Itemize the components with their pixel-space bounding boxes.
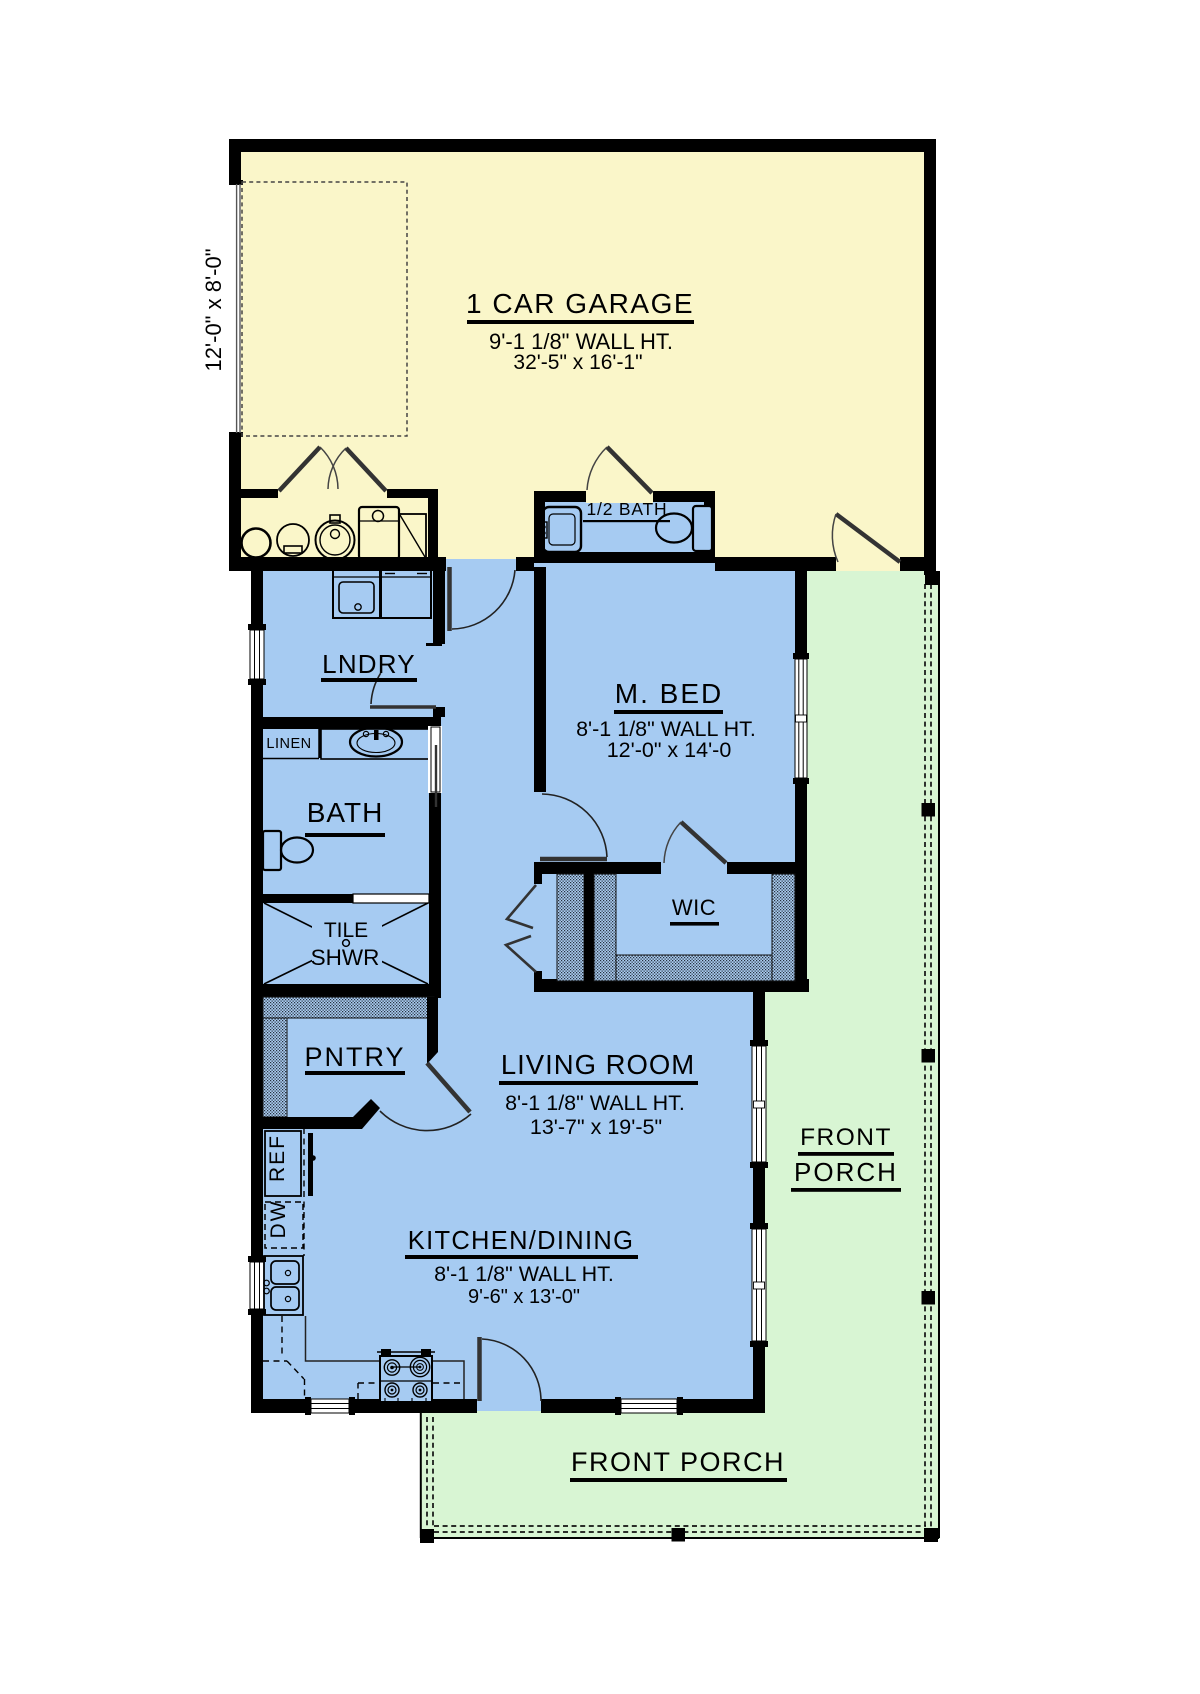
svg-text:12'-0" x 14'-0: 12'-0" x 14'-0 <box>607 738 732 762</box>
svg-text:12'-0" x 8'-0": 12'-0" x 8'-0" <box>201 248 226 371</box>
svg-text:PNTRY: PNTRY <box>304 1042 405 1072</box>
svg-text:LNDRY: LNDRY <box>322 649 416 679</box>
svg-text:SHWR: SHWR <box>311 945 380 970</box>
svg-text:REF: REF <box>266 1134 289 1182</box>
svg-text:M. BED: M. BED <box>615 678 723 709</box>
svg-text:FRONT: FRONT <box>800 1124 892 1151</box>
svg-text:1 CAR GARAGE: 1 CAR GARAGE <box>466 288 694 319</box>
svg-text:KITCHEN/DINING: KITCHEN/DINING <box>408 1227 634 1255</box>
svg-text:WIC: WIC <box>672 895 716 920</box>
svg-text:TILE: TILE <box>324 919 368 942</box>
svg-text:8'-1 1/8" WALL HT.: 8'-1 1/8" WALL HT. <box>505 1091 685 1115</box>
svg-text:PORCH: PORCH <box>794 1157 898 1187</box>
svg-text:1/2 BATH: 1/2 BATH <box>587 499 668 519</box>
svg-text:DW: DW <box>267 1200 290 1239</box>
svg-text:13'-7" x 19'-5": 13'-7" x 19'-5" <box>530 1115 662 1139</box>
svg-text:8'-1 1/8" WALL HT.: 8'-1 1/8" WALL HT. <box>434 1262 614 1286</box>
svg-text:LIVING ROOM: LIVING ROOM <box>501 1049 695 1080</box>
svg-text:32'-5" x 16'-1": 32'-5" x 16'-1" <box>513 351 642 374</box>
svg-text:9'-6" x 13'-0": 9'-6" x 13'-0" <box>468 1286 580 1308</box>
svg-text:FRONT PORCH: FRONT PORCH <box>571 1447 785 1477</box>
svg-text:LINEN: LINEN <box>266 736 311 752</box>
svg-text:BATH: BATH <box>307 797 384 828</box>
